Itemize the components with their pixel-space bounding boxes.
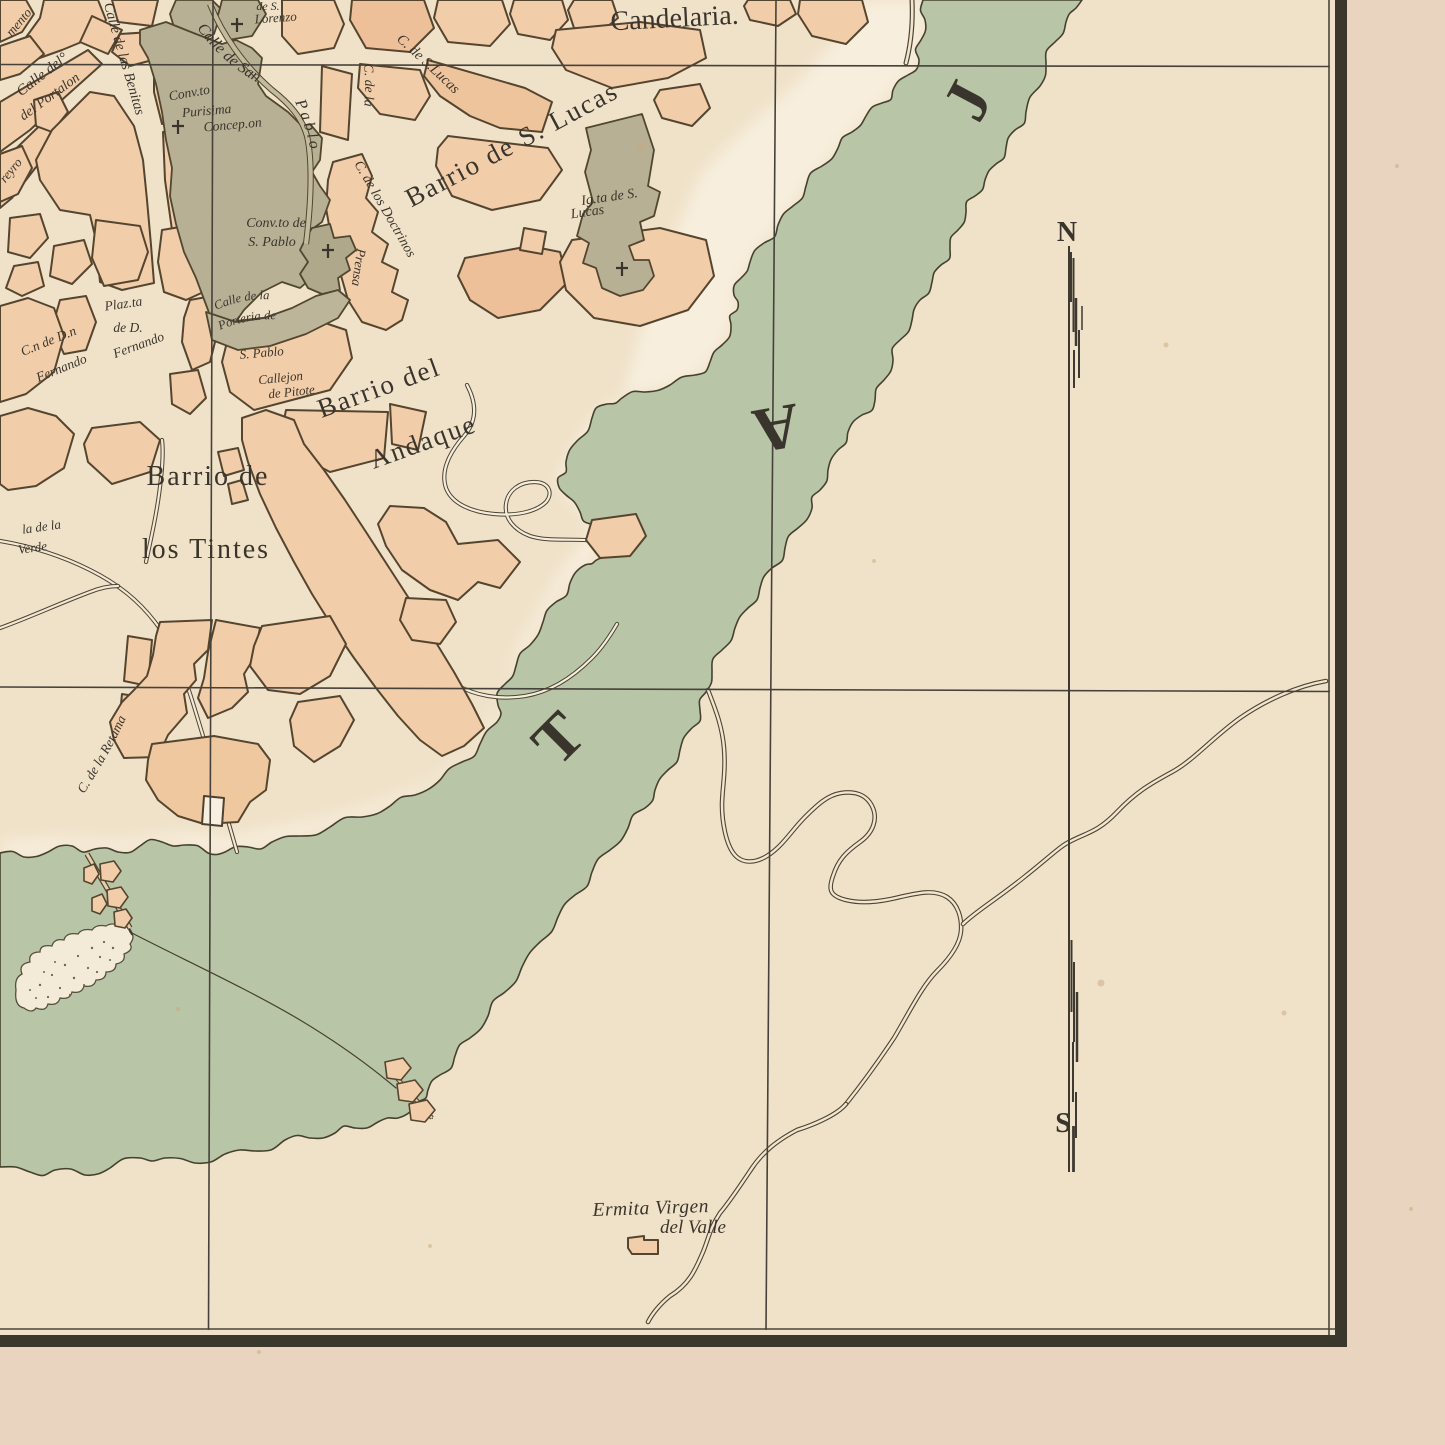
svg-text:Conv.to de: Conv.to de [246,216,306,231]
svg-text:Barrio de: Barrio de [147,461,270,492]
svg-text:del Valle: del Valle [660,1217,726,1238]
svg-text:de D.: de D. [113,320,142,335]
svg-text:N: N [1057,217,1077,248]
svg-text:los Tintes: los Tintes [142,534,270,565]
svg-text:S. Pablo: S. Pablo [248,235,295,250]
svg-text:C. de la: C. de la [361,63,377,107]
svg-text:S: S [1055,1108,1071,1139]
svg-text:Lorenzo: Lorenzo [253,9,298,27]
